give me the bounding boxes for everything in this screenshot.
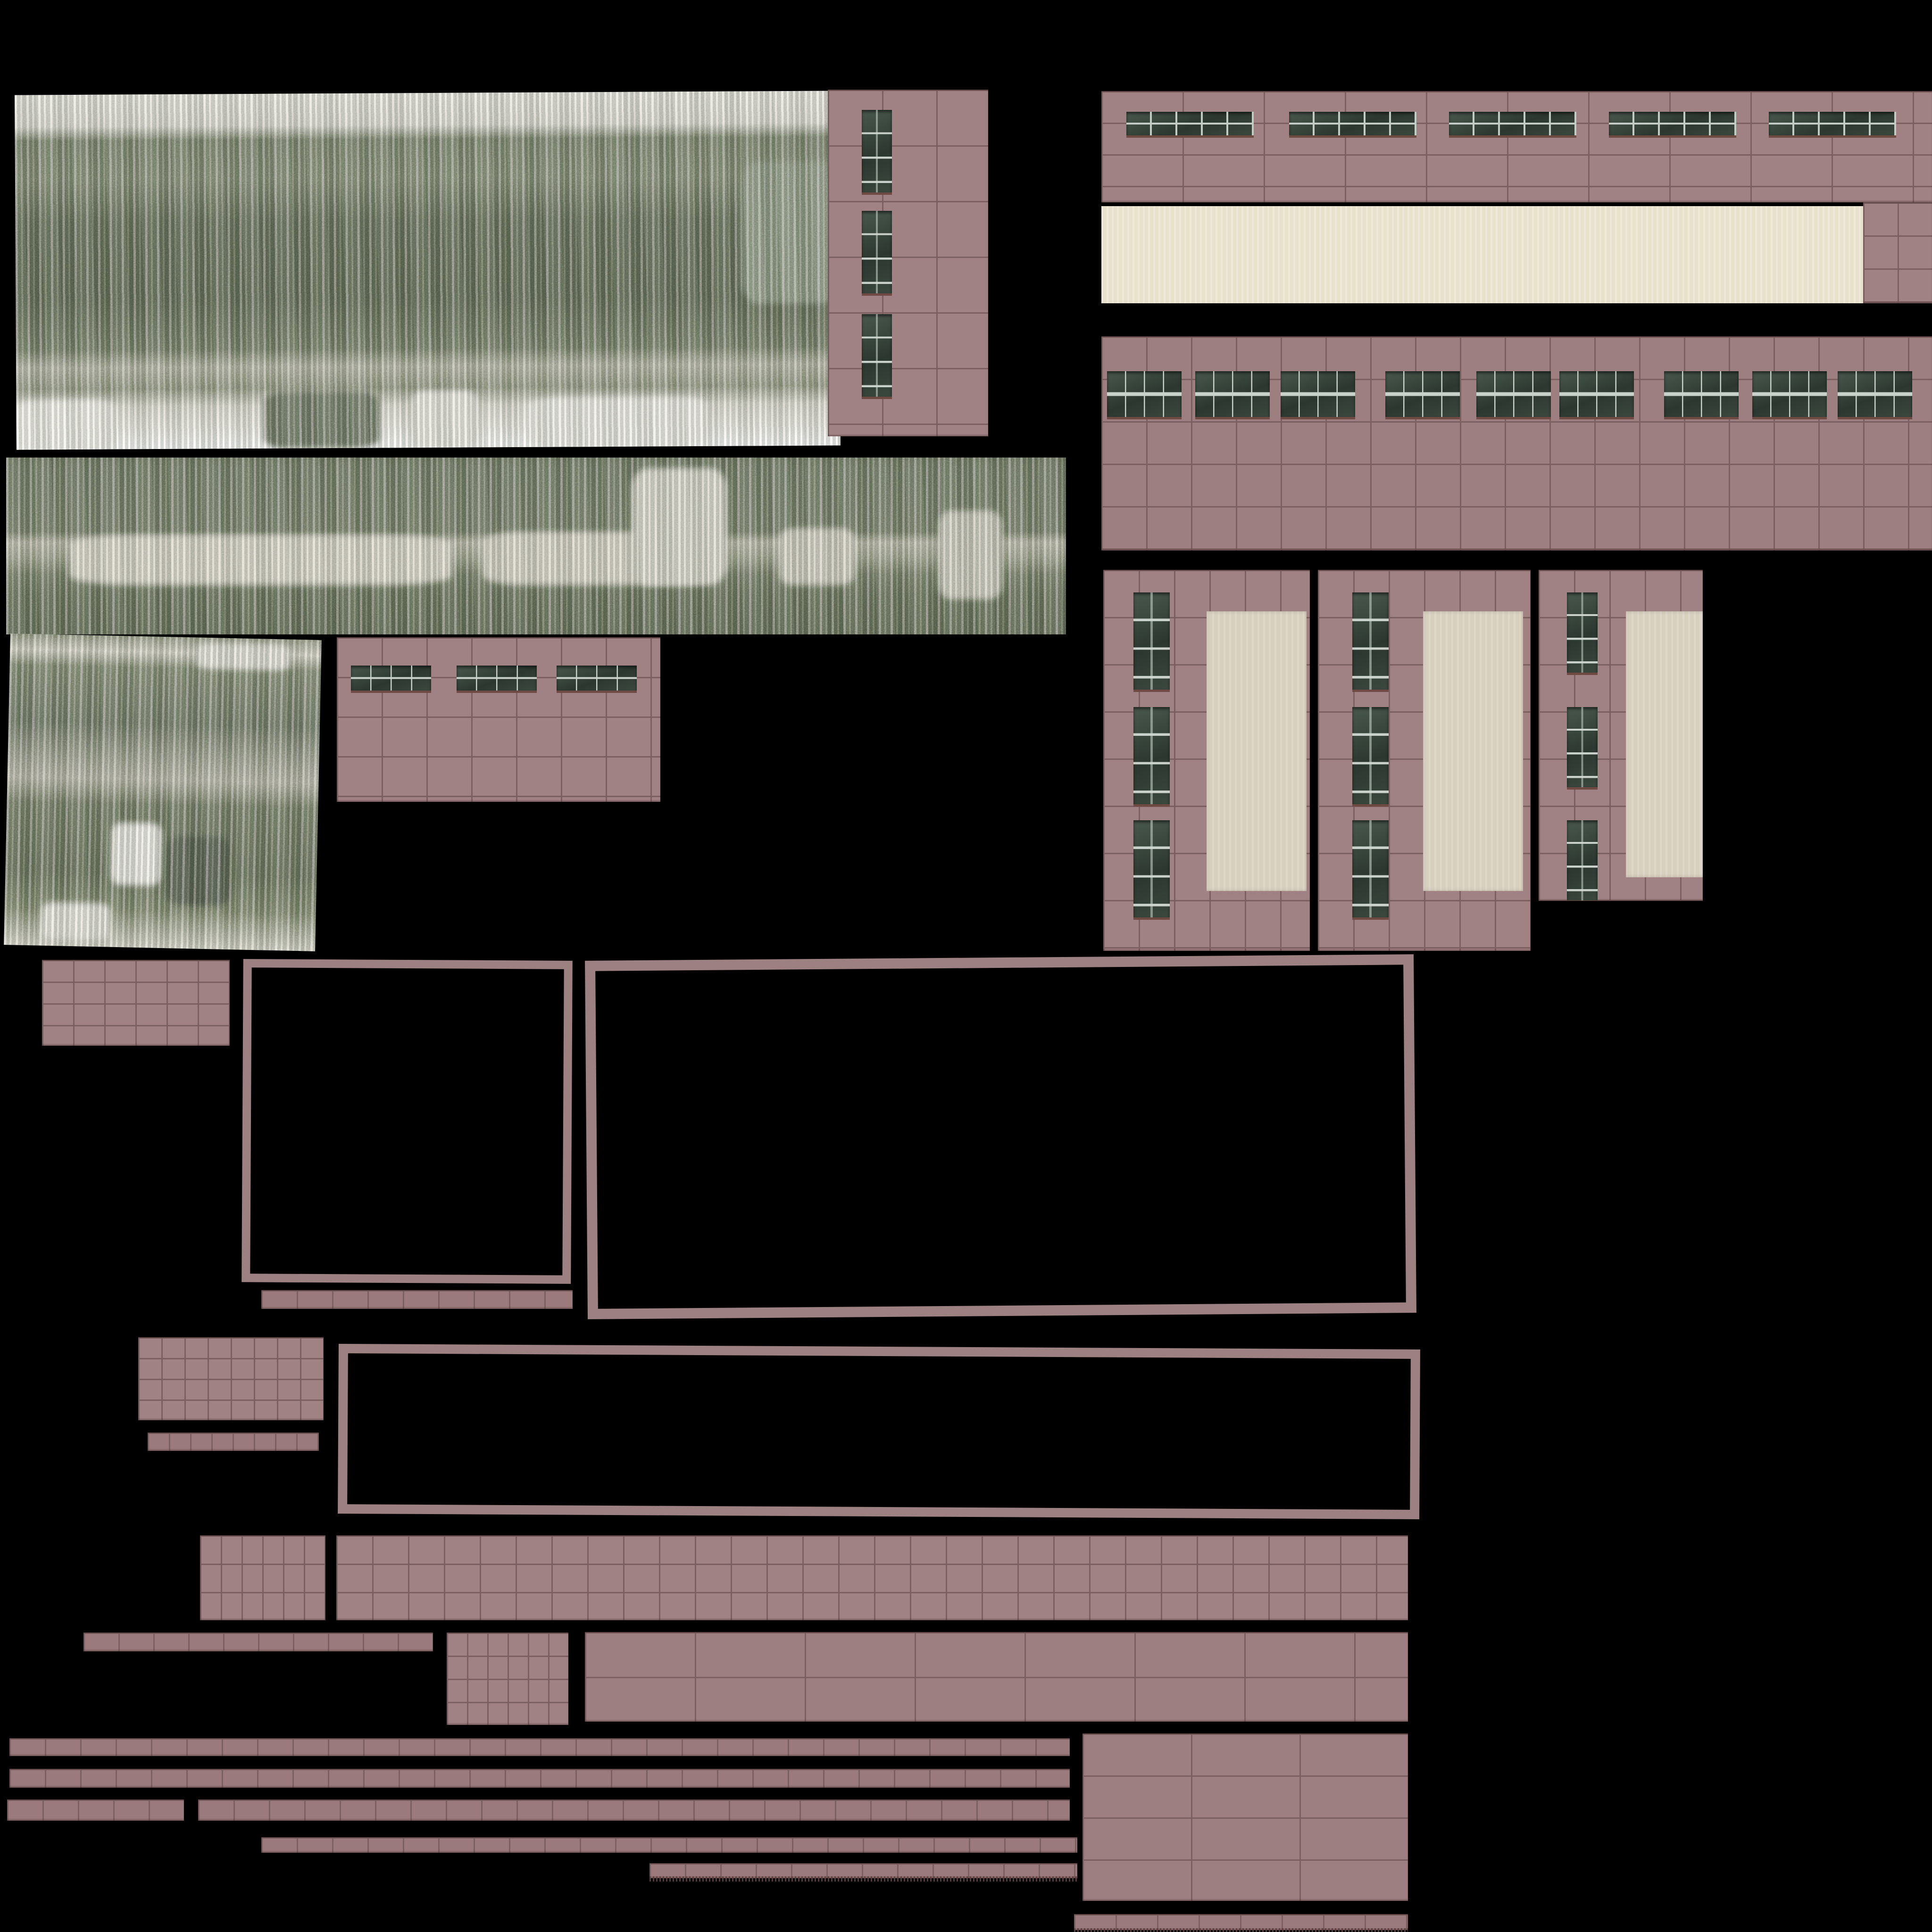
cream-inset-panel xyxy=(1423,611,1523,891)
uv-frame-wide xyxy=(338,1344,1420,1519)
facade-window xyxy=(1352,820,1389,920)
aerial-roof-photo-small xyxy=(4,633,322,951)
tile-strip-row-a-left xyxy=(200,1535,325,1620)
facade-window xyxy=(1385,371,1460,419)
facade-window xyxy=(1609,112,1736,138)
tile-strip-long-1 xyxy=(9,1738,1070,1756)
facade-window xyxy=(557,666,637,693)
tile-strip-small-2 xyxy=(148,1432,319,1451)
aerial-roof-photo-wide xyxy=(6,458,1066,634)
facade-window xyxy=(351,666,431,693)
facade-window xyxy=(1567,707,1598,790)
tile-block-small-3 xyxy=(447,1632,568,1725)
facade-window xyxy=(457,666,537,693)
wall-extension-block xyxy=(1863,202,1932,303)
facade-pillar-1 xyxy=(1103,570,1310,951)
facade-window xyxy=(1281,371,1355,419)
facade-window xyxy=(862,314,892,399)
facade-window xyxy=(862,110,892,195)
facade-window xyxy=(1195,371,1270,419)
facade-window xyxy=(1352,707,1389,807)
tile-block-wide-2 xyxy=(1083,1733,1408,1901)
tile-strip-under-frame xyxy=(261,1290,573,1309)
tile-strip-long-3b xyxy=(198,1799,1070,1821)
cream-inset-panel xyxy=(1207,611,1307,891)
facade-window xyxy=(862,211,892,296)
photo-noise xyxy=(4,633,322,951)
facade-pillar-3 xyxy=(1539,570,1703,901)
facade-column-strip xyxy=(828,90,988,436)
facade-window xyxy=(1752,371,1827,419)
tile-block-wide-1 xyxy=(585,1632,1408,1722)
tile-strip-long-4 xyxy=(261,1837,1077,1853)
tile-strip-thin-1 xyxy=(83,1632,433,1651)
tile-block-small-1 xyxy=(42,960,230,1046)
facade-window-band-top xyxy=(1101,91,1932,202)
facade-pillar-2 xyxy=(1318,570,1531,951)
photo-noise xyxy=(15,91,841,450)
texture-atlas xyxy=(0,0,1932,1932)
tile-strip-long-2 xyxy=(9,1769,1070,1788)
facade-window xyxy=(1559,371,1634,419)
aerial-roof-photo-large xyxy=(15,91,841,450)
facade-window xyxy=(1133,820,1170,920)
tile-strip-long-3a xyxy=(7,1799,184,1821)
cream-stucco-strip xyxy=(1101,206,1863,303)
facade-window xyxy=(1133,707,1170,807)
facade-window xyxy=(1476,371,1551,419)
facade-window xyxy=(1664,371,1739,419)
facade-window xyxy=(1289,112,1416,138)
facade-three-windows xyxy=(337,637,660,802)
photo-noise xyxy=(6,458,1066,634)
tile-strip-row-a xyxy=(336,1535,1408,1620)
tile-block-small-2 xyxy=(138,1337,324,1420)
facade-window xyxy=(1449,112,1576,138)
uv-frame-large xyxy=(585,954,1416,1319)
facade-window xyxy=(1107,371,1182,419)
facade-window xyxy=(1567,820,1598,901)
facade-window xyxy=(1838,371,1912,419)
facade-window xyxy=(1769,112,1896,138)
tile-strip-bottom-right xyxy=(1074,1914,1408,1930)
tile-strip-long-5 xyxy=(650,1863,1077,1878)
facade-window xyxy=(1126,112,1254,138)
cream-inset-panel xyxy=(1626,611,1703,877)
uv-frame-square xyxy=(241,959,573,1284)
facade-window xyxy=(1352,592,1389,692)
facade-window xyxy=(1567,592,1598,675)
facade-window-band-mid xyxy=(1101,336,1932,550)
facade-window xyxy=(1133,592,1170,692)
